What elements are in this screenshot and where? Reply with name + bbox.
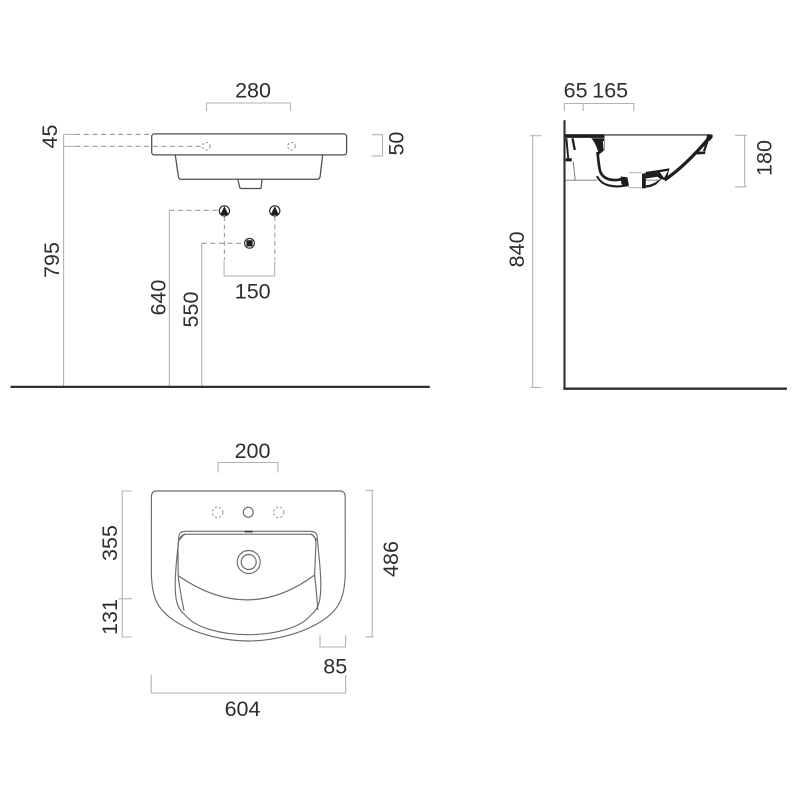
svg-text:200: 200 [235, 439, 271, 463]
svg-text:165: 165 [592, 78, 628, 102]
svg-text:85: 85 [323, 655, 347, 679]
svg-text:45: 45 [38, 125, 62, 149]
svg-text:604: 604 [225, 697, 261, 721]
svg-text:486: 486 [379, 541, 403, 577]
svg-text:355: 355 [98, 525, 122, 561]
svg-text:180: 180 [753, 140, 777, 176]
svg-text:795: 795 [40, 242, 64, 278]
svg-text:640: 640 [147, 280, 171, 316]
svg-text:65: 65 [564, 78, 588, 102]
svg-text:840: 840 [505, 231, 529, 267]
svg-text:280: 280 [235, 78, 271, 102]
svg-text:150: 150 [235, 279, 271, 303]
svg-text:131: 131 [98, 599, 122, 635]
svg-text:50: 50 [384, 132, 408, 156]
svg-text:550: 550 [179, 292, 203, 328]
